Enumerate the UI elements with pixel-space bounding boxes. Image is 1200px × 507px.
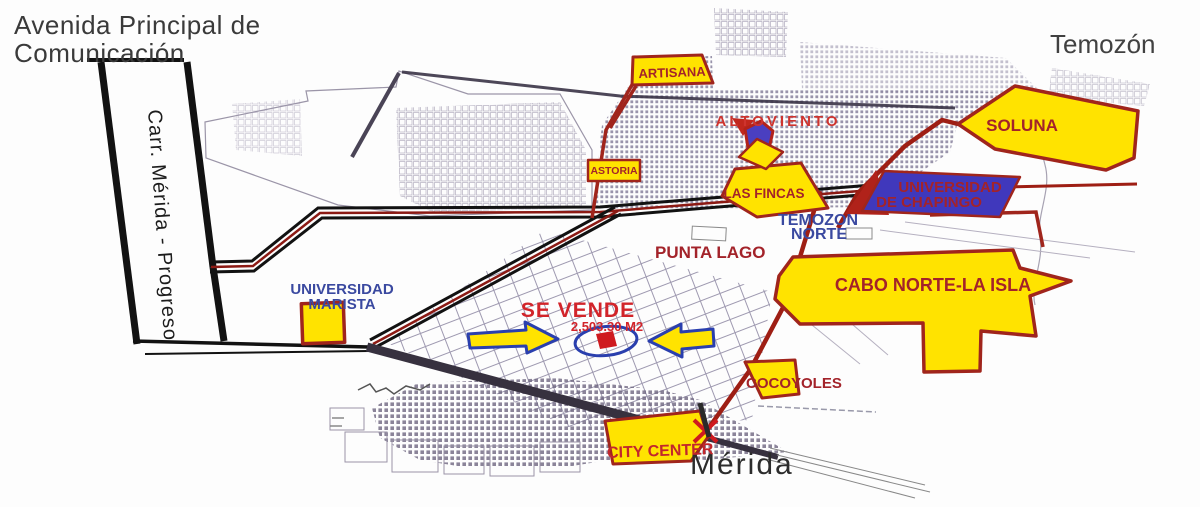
temozon-norte-label-line2: NORTE: [791, 226, 847, 243]
top-grid-patch-b: [800, 42, 1044, 95]
top-grid-patch-a: [714, 8, 788, 57]
temozon-corner-label: Temozón: [1050, 29, 1156, 59]
chapingo-label-line2: DE CHAPINGO: [876, 194, 982, 211]
left-edge-dashes: [330, 418, 344, 426]
cabo-norte-la-isla-area: [775, 250, 1071, 372]
avenida-label-line1: Avenida Principal de: [14, 10, 261, 40]
artisana-label: ARTISANA: [638, 64, 706, 81]
carretera-label: Carr. Mérida - Progreso: [143, 109, 181, 342]
real-estate-map: Avenida Principal de Comunicación Temozó…: [0, 0, 1200, 507]
northwest-grid-patch: [232, 99, 302, 156]
punta-lago-label: PUNTA LAGO: [655, 243, 766, 262]
northwest-dark-slash: [352, 73, 399, 157]
cocoyoles-label: COCOYOLES: [746, 375, 842, 392]
soluna-label: SOLUNA: [986, 116, 1058, 135]
avenida-label-line2: Comunicación: [14, 38, 185, 68]
northwest-grid-texture: [396, 102, 586, 212]
las-fincas-label: LAS FINCAS: [724, 186, 805, 201]
cabo-norte-label: CABO NORTE-LA ISLA: [835, 275, 1031, 295]
universidad-marista-label-line2: MARISTA: [308, 296, 375, 313]
map-canvas: Avenida Principal de Comunicación Temozó…: [0, 0, 1200, 507]
astoria-label: ASTORIA: [590, 165, 637, 177]
lot-size-label: 2,503.30 M2: [571, 319, 643, 334]
faint-dashed-note-line: [758, 406, 876, 412]
altoviento-label: ALTOVIENTO: [715, 113, 840, 130]
